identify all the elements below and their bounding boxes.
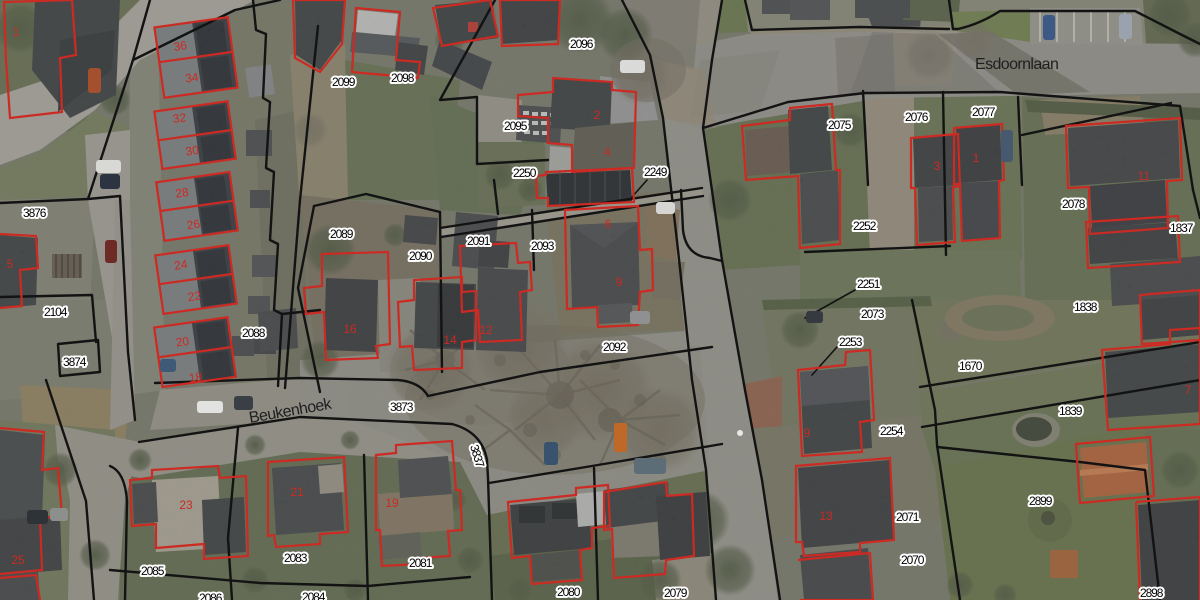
svg-text:24: 24: [173, 257, 188, 273]
svg-text:5: 5: [7, 257, 14, 271]
svg-text:2070: 2070: [901, 553, 925, 567]
svg-text:16: 16: [343, 322, 357, 336]
svg-text:2090: 2090: [409, 249, 433, 263]
svg-text:2254: 2254: [880, 424, 904, 438]
svg-text:21: 21: [290, 485, 304, 499]
svg-text:34: 34: [184, 70, 199, 86]
svg-text:18: 18: [188, 369, 203, 385]
svg-text:25: 25: [11, 553, 25, 567]
svg-text:3: 3: [934, 159, 941, 173]
svg-text:14: 14: [443, 333, 457, 347]
svg-text:2084: 2084: [302, 590, 326, 600]
svg-text:2098: 2098: [391, 71, 415, 85]
svg-text:2076: 2076: [905, 110, 929, 124]
svg-text:4: 4: [604, 145, 611, 159]
svg-text:2088: 2088: [242, 326, 266, 340]
svg-text:2249: 2249: [644, 165, 668, 179]
svg-text:2092: 2092: [603, 340, 627, 354]
svg-text:2093: 2093: [531, 239, 555, 253]
svg-text:2252: 2252: [853, 219, 877, 233]
svg-text:2: 2: [594, 108, 601, 122]
svg-text:2077: 2077: [972, 105, 996, 119]
svg-text:3876: 3876: [23, 206, 47, 220]
svg-text:2085: 2085: [141, 564, 165, 578]
svg-text:2091: 2091: [467, 234, 491, 248]
svg-text:1837: 1837: [1170, 221, 1194, 235]
svg-text:Esdoornlaan: Esdoornlaan: [975, 56, 1058, 73]
svg-text:2250: 2250: [513, 166, 537, 180]
svg-text:1: 1: [973, 151, 980, 165]
svg-text:9: 9: [804, 426, 811, 440]
svg-text:26: 26: [186, 217, 201, 233]
svg-text:2099: 2099: [332, 75, 356, 89]
svg-text:2898: 2898: [1140, 586, 1164, 600]
svg-text:1839: 1839: [1059, 404, 1083, 418]
svg-text:1838: 1838: [1074, 300, 1098, 314]
svg-text:3874: 3874: [63, 355, 87, 369]
svg-text:2086: 2086: [199, 591, 223, 600]
svg-text:2096: 2096: [570, 37, 594, 51]
svg-text:2095: 2095: [504, 119, 528, 133]
svg-text:20: 20: [175, 334, 190, 350]
svg-text:2075: 2075: [828, 118, 852, 132]
svg-text:23: 23: [179, 498, 193, 512]
svg-text:22: 22: [187, 288, 202, 304]
svg-text:13: 13: [819, 509, 833, 523]
svg-text:1670: 1670: [959, 359, 983, 373]
svg-text:2071: 2071: [896, 510, 920, 524]
svg-text:2083: 2083: [284, 551, 308, 565]
svg-text:9: 9: [616, 275, 623, 289]
svg-text:2078: 2078: [1062, 197, 1086, 211]
svg-text:3873: 3873: [390, 400, 414, 414]
svg-text:19: 19: [385, 496, 399, 510]
svg-text:2104: 2104: [44, 305, 68, 319]
svg-text:2081: 2081: [409, 556, 433, 570]
svg-text:2251: 2251: [857, 277, 881, 291]
svg-text:7: 7: [1185, 383, 1192, 397]
svg-text:2089: 2089: [330, 227, 354, 241]
svg-text:2080: 2080: [557, 585, 581, 599]
svg-text:30: 30: [185, 143, 200, 159]
svg-text:11: 11: [1138, 169, 1151, 183]
svg-text:36: 36: [173, 38, 188, 54]
svg-text:28: 28: [174, 185, 189, 201]
svg-text:1: 1: [13, 25, 20, 39]
svg-text:2899: 2899: [1029, 494, 1053, 508]
svg-text:2079: 2079: [664, 586, 688, 600]
svg-text:2073: 2073: [861, 307, 885, 321]
svg-text:32: 32: [172, 110, 187, 126]
svg-text:12: 12: [479, 323, 493, 337]
svg-text:6: 6: [605, 217, 612, 231]
svg-text:2253: 2253: [839, 335, 863, 349]
